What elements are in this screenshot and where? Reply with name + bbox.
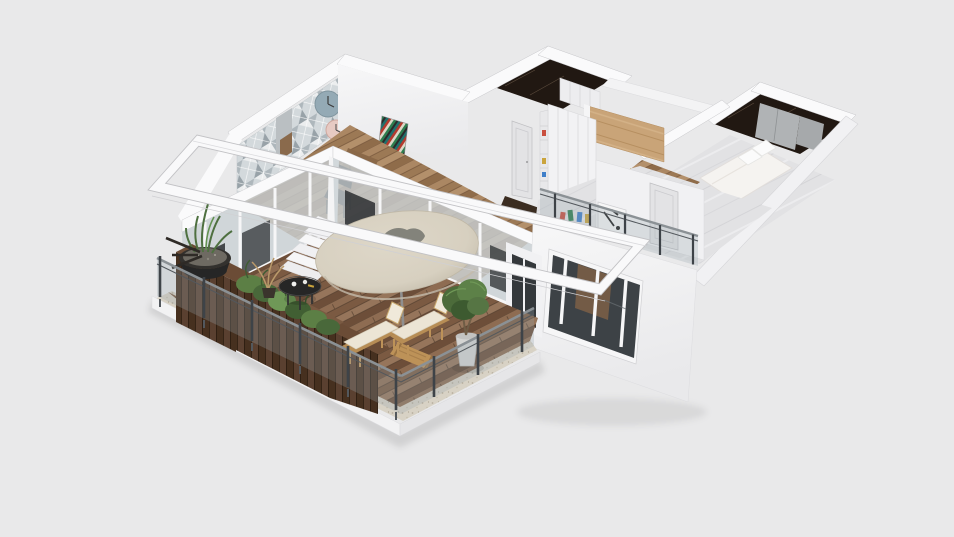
wardrobe-cubbies [540,110,548,192]
wall-clock-blue [315,91,341,117]
hallway-door [512,121,532,199]
scene-svg [0,0,954,537]
floorplan-3d-viewport[interactable] [0,0,954,537]
